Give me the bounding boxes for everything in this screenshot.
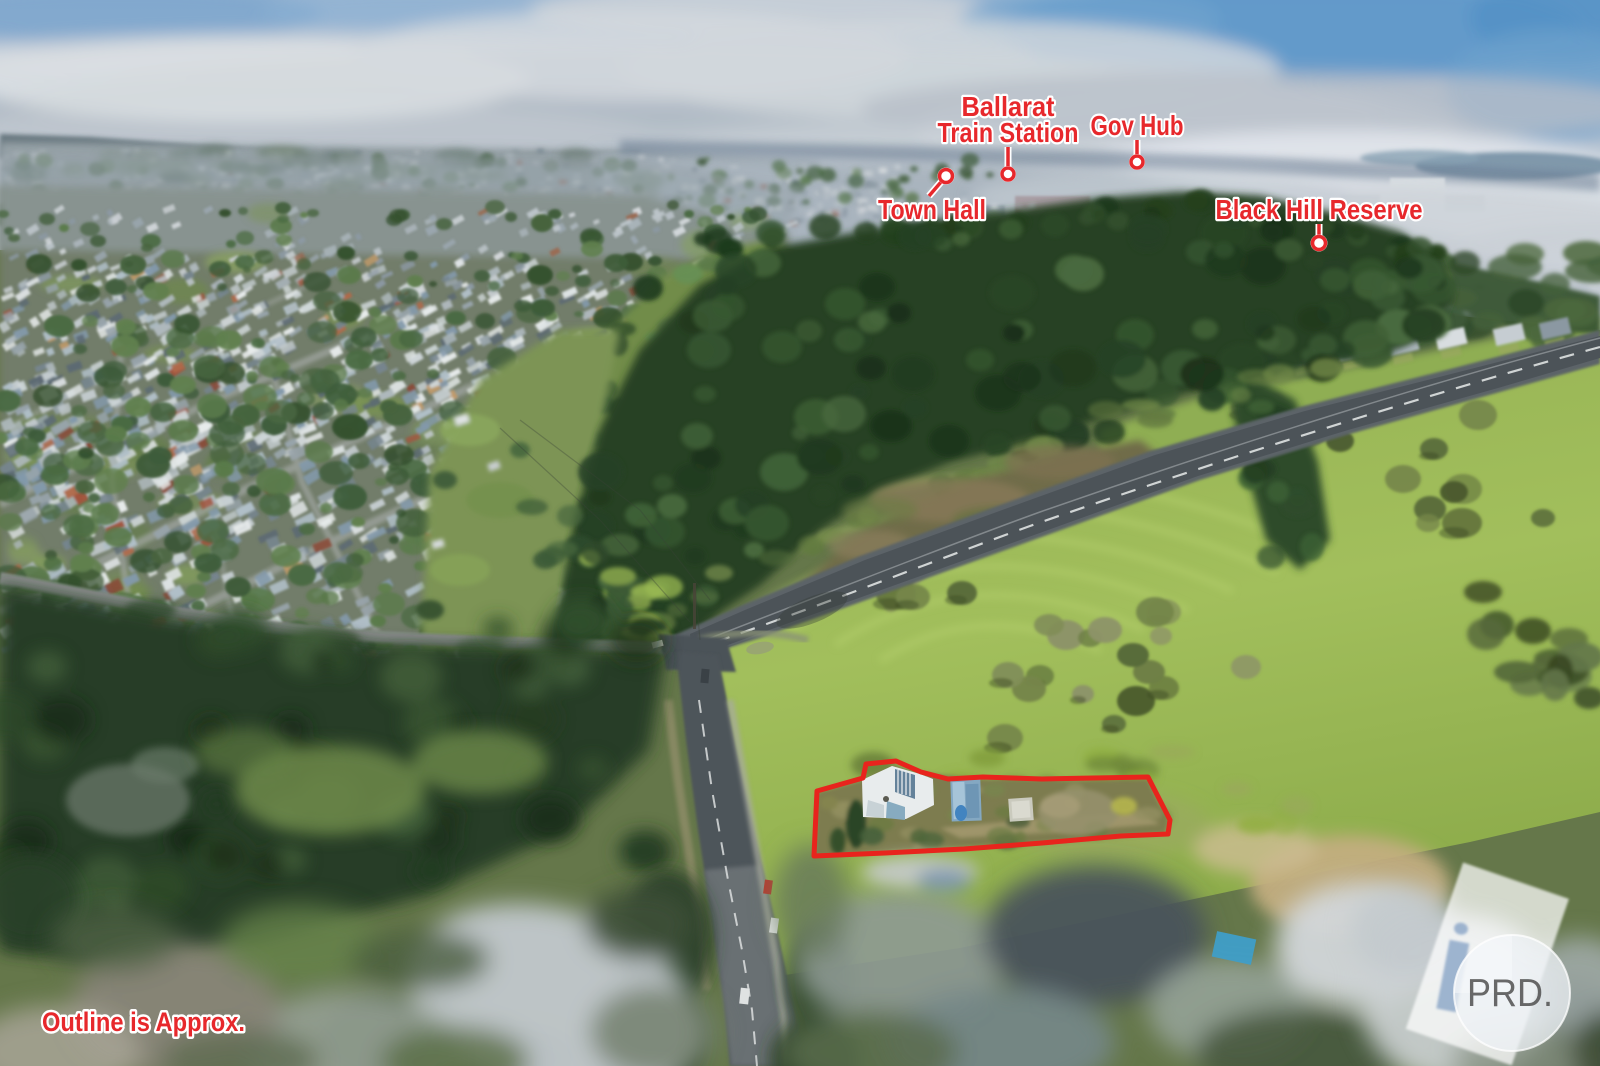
svg-text:PRD.: PRD. bbox=[1467, 972, 1553, 1015]
svg-text:Black Hill Reserve: Black Hill Reserve bbox=[1216, 194, 1423, 225]
svg-text:Town Hall: Town Hall bbox=[878, 194, 986, 225]
svg-text:Gov Hub: Gov Hub bbox=[1091, 110, 1184, 141]
svg-text:Outline is Approx.: Outline is Approx. bbox=[42, 1007, 245, 1037]
svg-text:Train Station: Train Station bbox=[938, 117, 1079, 148]
